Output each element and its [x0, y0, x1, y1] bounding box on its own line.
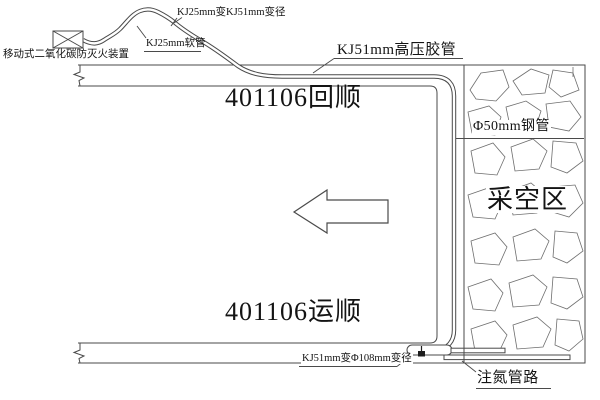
break-symbol-bottom	[74, 343, 84, 363]
valve-icon	[418, 351, 425, 357]
leader-kj25-hose	[137, 26, 146, 38]
transport-airway-label: 401106运顺	[225, 298, 362, 325]
goaf-area	[464, 65, 585, 363]
nitrogen-pipe-upper	[451, 348, 505, 353]
kj25-hose-label: KJ25mm软管	[146, 38, 206, 49]
leader-kj51-hose	[313, 59, 334, 74]
co2-device-label: 移动式二氧化碳防灭火装置	[3, 49, 129, 60]
break-symbol-top	[74, 65, 84, 86]
kj51-phi108-reducer-label: KJ51mm变Φ108mm变径	[301, 353, 413, 364]
direction-arrow-icon	[294, 190, 388, 233]
co2-device-symbol	[53, 31, 83, 48]
diagram-canvas: 移动式二氧化碳防灭火装置 KJ25mm变KJ51mm变径 KJ25mm软管 KJ…	[0, 0, 600, 400]
goaf-label: 采空区	[486, 186, 569, 213]
nitrogen-pipeline-label: 注氮管路	[477, 371, 539, 387]
nitrogen-pipe-lower	[444, 355, 570, 360]
phi108-pipe-capsule	[407, 345, 452, 355]
kj25-kj51-reducer-label: KJ25mm变KJ51mm变径	[177, 7, 286, 18]
steel-pipe-label: Φ50mm钢管	[472, 120, 551, 135]
kj51-hose-label: KJ51mm高压胶管	[337, 43, 456, 59]
return-airway-label: 401106回顺	[225, 84, 362, 111]
